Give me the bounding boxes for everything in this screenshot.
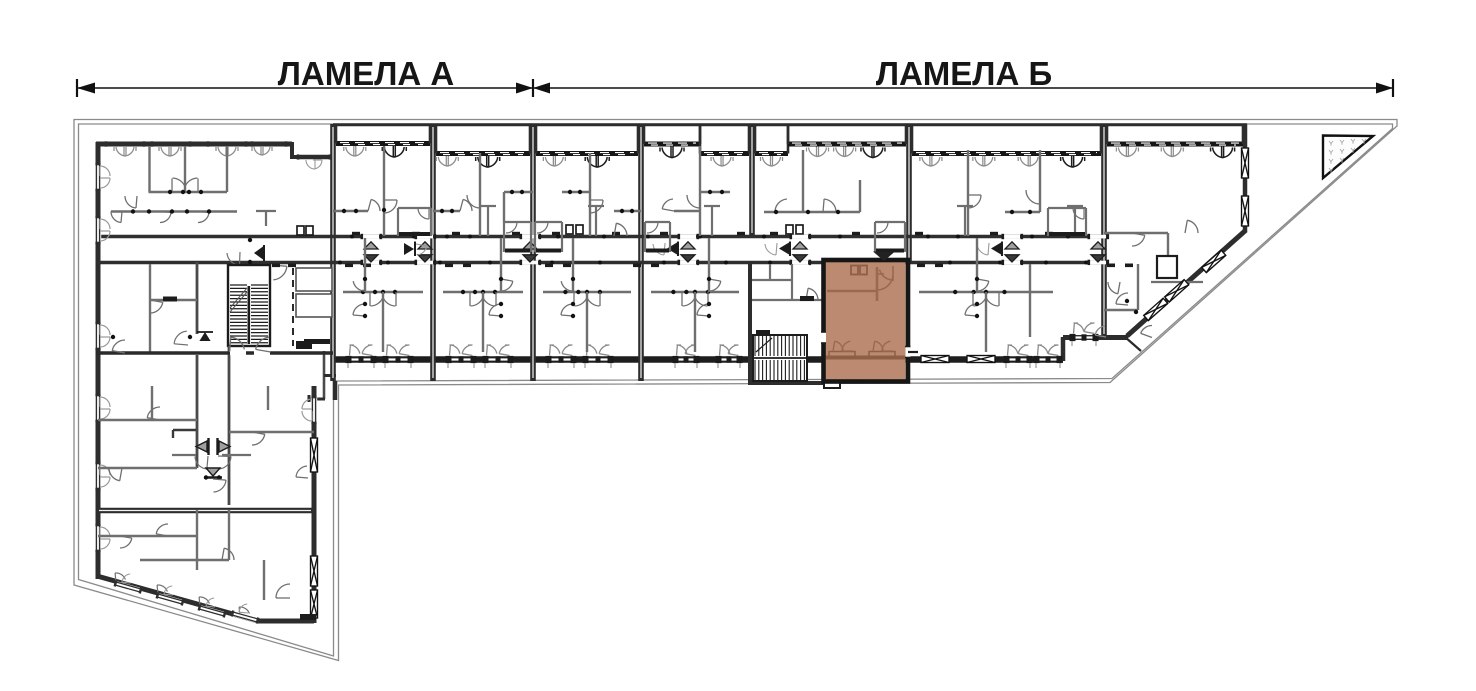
svg-text:ЛАМЕЛА А: ЛАМЕЛА А <box>278 55 454 92</box>
svg-text:ЛАМЕЛА Б: ЛАМЕЛА Б <box>876 55 1052 92</box>
